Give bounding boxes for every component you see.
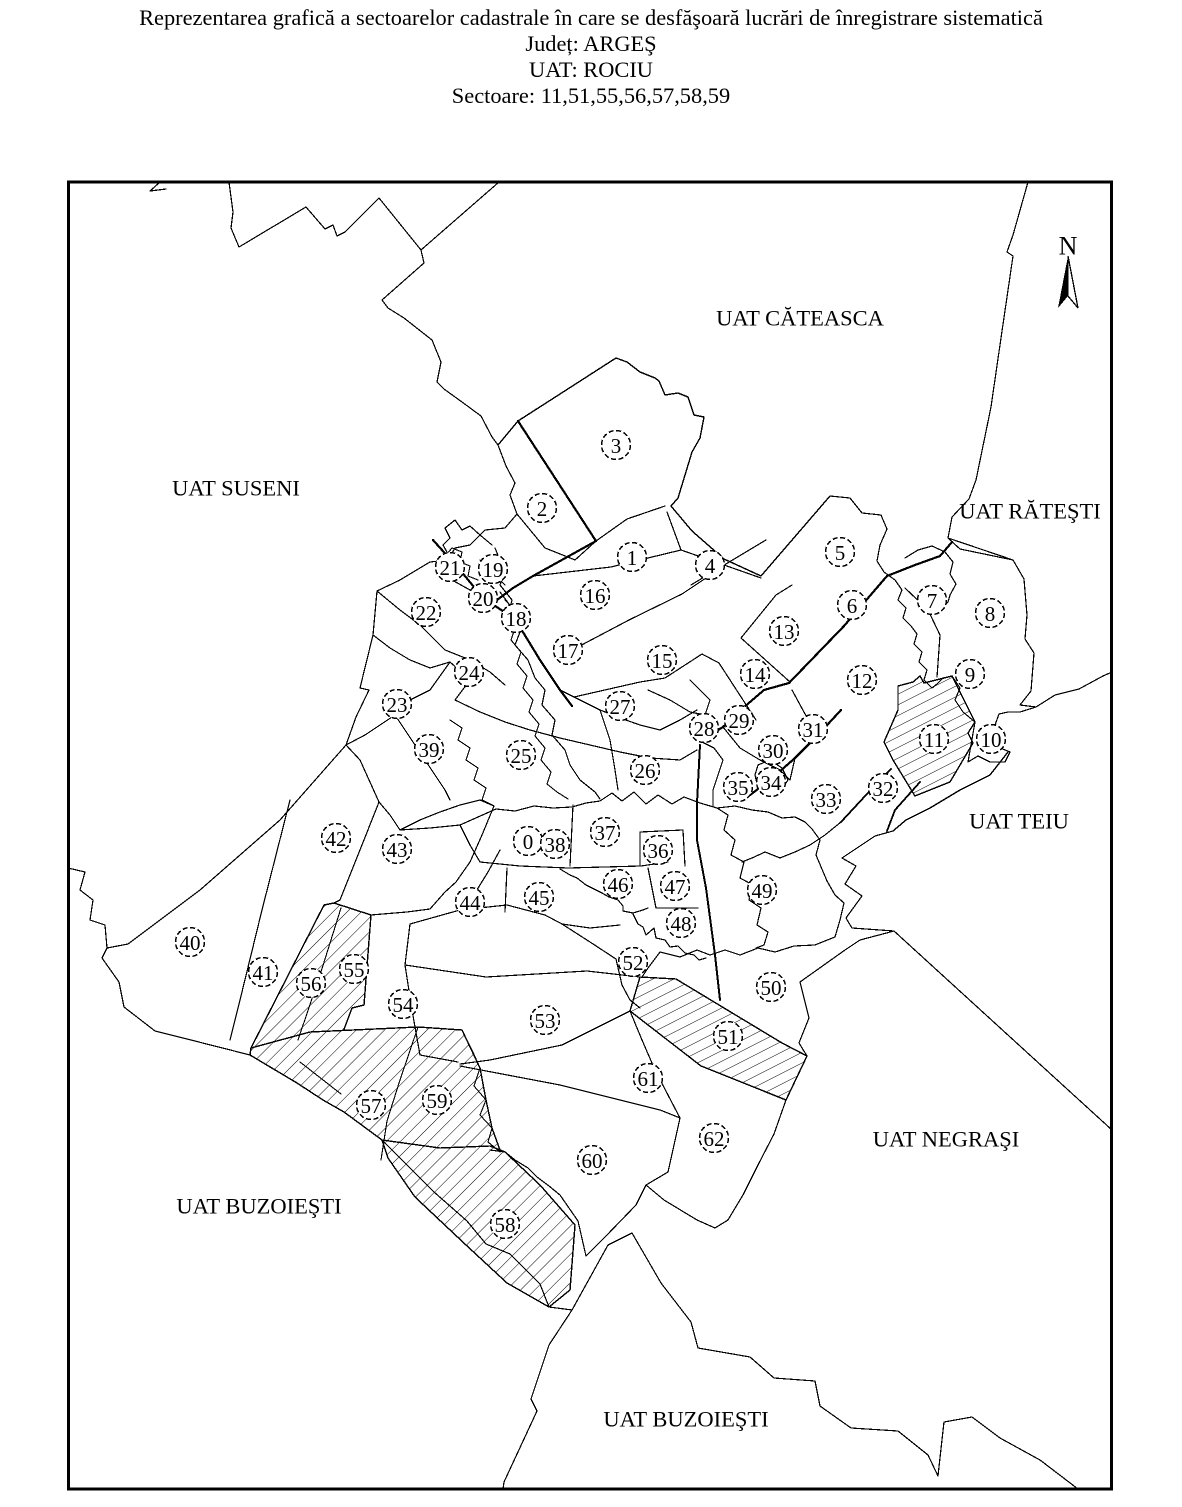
- svg-text:7: 7: [927, 589, 938, 613]
- svg-text:59: 59: [427, 1089, 448, 1113]
- svg-text:16: 16: [585, 584, 606, 608]
- svg-text:46: 46: [608, 873, 629, 897]
- svg-text:0: 0: [523, 830, 534, 854]
- svg-text:10: 10: [981, 728, 1002, 752]
- svg-text:24: 24: [459, 661, 481, 685]
- svg-text:20: 20: [473, 587, 494, 611]
- svg-text:41: 41: [253, 961, 274, 985]
- svg-text:27: 27: [610, 695, 631, 719]
- svg-text:17: 17: [558, 639, 579, 663]
- svg-text:3: 3: [611, 434, 622, 458]
- svg-text:51: 51: [718, 1025, 739, 1049]
- svg-text:UAT NEGRAŞI: UAT NEGRAŞI: [873, 1127, 1019, 1152]
- svg-text:57: 57: [361, 1094, 382, 1118]
- svg-text:UAT BUZOIEŞTI: UAT BUZOIEŞTI: [176, 1194, 341, 1219]
- svg-text:5: 5: [835, 541, 846, 565]
- svg-text:43: 43: [387, 838, 408, 862]
- svg-text:25: 25: [511, 744, 532, 768]
- svg-text:9: 9: [965, 663, 976, 687]
- svg-text:42: 42: [326, 827, 347, 851]
- svg-text:8: 8: [985, 602, 996, 626]
- svg-text:UAT RĂTEŞTI: UAT RĂTEŞTI: [959, 499, 1100, 524]
- svg-text:4: 4: [705, 554, 716, 578]
- svg-text:38: 38: [545, 833, 566, 857]
- svg-text:50: 50: [761, 976, 782, 1000]
- svg-text:37: 37: [595, 821, 616, 845]
- svg-text:36: 36: [648, 839, 669, 863]
- svg-text:34: 34: [761, 771, 783, 795]
- svg-text:62: 62: [704, 1127, 725, 1151]
- svg-text:1: 1: [627, 546, 638, 570]
- svg-text:2: 2: [537, 497, 548, 521]
- svg-text:15: 15: [652, 649, 673, 673]
- svg-text:52: 52: [623, 951, 644, 975]
- svg-text:28: 28: [694, 717, 715, 741]
- svg-text:48: 48: [671, 912, 692, 936]
- svg-text:44: 44: [460, 891, 482, 915]
- svg-text:35: 35: [728, 776, 749, 800]
- svg-text:40: 40: [180, 931, 201, 955]
- svg-text:14: 14: [745, 663, 767, 687]
- svg-text:UAT TEIU: UAT TEIU: [969, 809, 1069, 834]
- svg-text:61: 61: [638, 1067, 659, 1091]
- svg-text:22: 22: [416, 601, 437, 625]
- svg-text:33: 33: [816, 788, 837, 812]
- svg-text:32: 32: [873, 777, 894, 801]
- svg-text:56: 56: [301, 972, 322, 996]
- svg-text:UAT SUSENI: UAT SUSENI: [172, 476, 300, 501]
- svg-text:47: 47: [665, 875, 686, 899]
- svg-text:53: 53: [535, 1009, 556, 1033]
- svg-text:19: 19: [483, 558, 504, 582]
- svg-text:13: 13: [774, 620, 795, 644]
- svg-text:45: 45: [529, 886, 550, 910]
- svg-text:54: 54: [393, 993, 415, 1017]
- svg-text:39: 39: [419, 738, 440, 762]
- svg-text:UAT BUZOIEŞTI: UAT BUZOIEŞTI: [603, 1407, 768, 1432]
- svg-text:31: 31: [803, 718, 824, 742]
- svg-text:11: 11: [924, 728, 944, 752]
- svg-text:49: 49: [752, 879, 773, 903]
- svg-text:26: 26: [635, 759, 656, 783]
- svg-text:55: 55: [344, 958, 365, 982]
- svg-text:6: 6: [847, 594, 858, 618]
- svg-text:18: 18: [506, 607, 527, 631]
- svg-text:30: 30: [763, 739, 784, 763]
- svg-text:60: 60: [582, 1149, 603, 1173]
- svg-text:29: 29: [729, 709, 750, 733]
- svg-text:UAT CĂTEASCA: UAT CĂTEASCA: [716, 306, 884, 331]
- svg-text:23: 23: [387, 693, 408, 717]
- svg-text:58: 58: [495, 1213, 516, 1237]
- svg-text:21: 21: [440, 556, 461, 580]
- svg-text:12: 12: [852, 669, 873, 693]
